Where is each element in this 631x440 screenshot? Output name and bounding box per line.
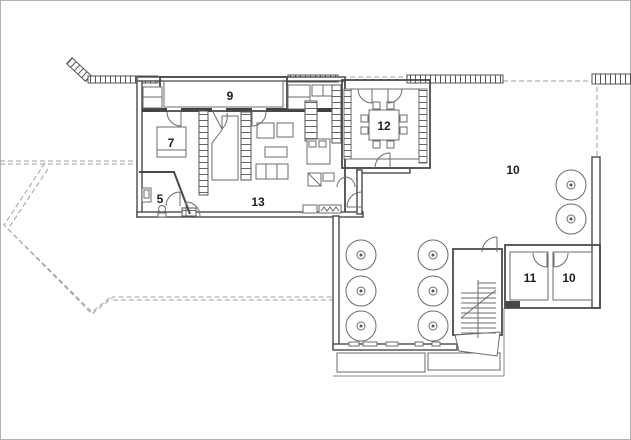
table-circle — [556, 204, 586, 234]
sofa — [256, 164, 288, 179]
door-arc — [358, 89, 372, 103]
floor-plan-canvas: 9 7 5 13 12 10 11 10 — [0, 0, 631, 440]
table-circle — [346, 240, 376, 270]
room-label-bedroom: 7 — [168, 136, 175, 150]
door-arc — [533, 253, 547, 267]
coffee-table — [265, 147, 287, 157]
table-circle — [346, 311, 376, 341]
room-label-living: 13 — [251, 195, 265, 209]
table-circle — [418, 276, 448, 306]
round-terrace-tables — [346, 170, 586, 341]
floor-plan-drawing: 9 7 5 13 12 10 11 10 — [0, 0, 631, 440]
room-label-porch: 9 — [227, 89, 234, 103]
bathroom — [308, 173, 355, 187]
room-label-store-2: 10 — [562, 271, 576, 285]
dashed-property-lines — [0, 77, 597, 314]
south-windows — [303, 205, 341, 213]
basin — [323, 173, 334, 181]
door-arc — [388, 89, 402, 103]
table-circle — [346, 276, 376, 306]
planter — [428, 353, 500, 370]
room-label-dining: 12 — [377, 119, 391, 133]
room-label-terrace: 10 — [506, 163, 520, 177]
store-rooms — [505, 245, 600, 308]
armchair — [277, 123, 293, 137]
table-circle — [418, 311, 448, 341]
porch-room-9 — [160, 77, 287, 111]
room-label-wc: 5 — [157, 192, 164, 206]
window-sill — [505, 301, 520, 308]
table-circle — [418, 240, 448, 270]
table-circle — [556, 170, 586, 200]
room-label-store-1: 11 — [524, 271, 537, 285]
door-arc — [375, 153, 390, 168]
armchair — [257, 123, 274, 138]
page-border — [1, 1, 631, 440]
door-arc — [554, 253, 568, 267]
planter — [337, 353, 425, 372]
door-arc — [166, 192, 180, 206]
